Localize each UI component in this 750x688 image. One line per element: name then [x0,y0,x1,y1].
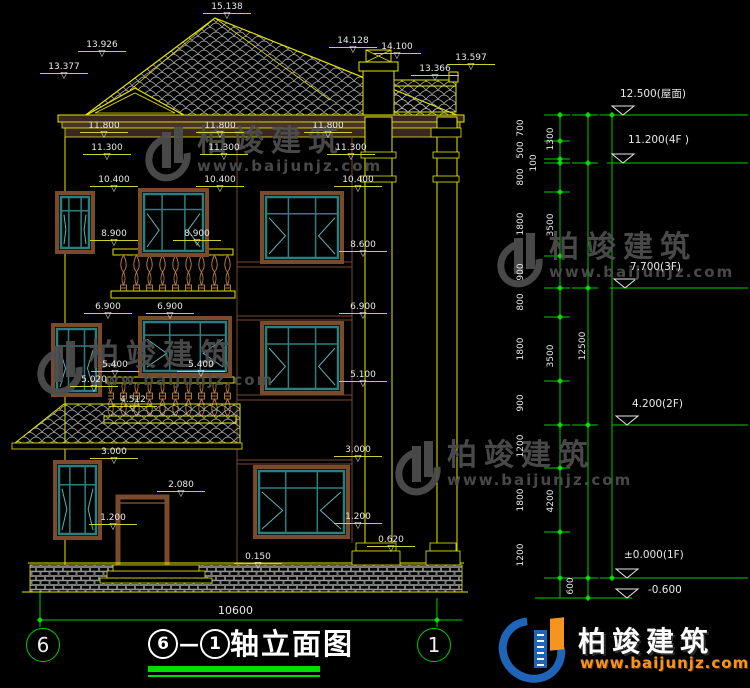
chain-dim-label: 4200 [546,490,556,513]
level-triangle-icon: ▽ [99,50,106,59]
dim-label: 5.400▽ [177,360,225,372]
dim-label: 8.900▽ [90,229,138,241]
chain-dim-label: 800 [516,293,526,310]
chain-dim-label: 700 [516,119,526,136]
dim-label: 0.150▽ [234,552,282,564]
level-triangle-icon: ▽ [360,312,367,321]
level-triangle-icon: ▽ [360,250,367,259]
elevation-label: ±0.000(1F) [624,549,684,561]
level-triangle-icon: ▽ [110,523,117,532]
watermark-brand-text: 柏竣建筑 [549,232,734,264]
level-triangle-icon: ▽ [101,131,108,140]
dim-label: 2.080▽ [157,480,205,492]
elevation-label: 4.200(2F) [632,398,683,410]
dim-label: 8.900▽ [173,229,221,241]
level-triangle-icon: ▽ [217,185,224,194]
dim-label: 5.020▽ [70,375,118,387]
logo-building-icon [550,617,564,650]
level-triangle-icon: ▽ [355,522,362,531]
window [255,467,348,537]
level-triangle-icon: ▽ [350,46,357,55]
chain-dim-label: 600 [566,577,576,594]
logo-building-icon-blue [534,630,547,668]
level-triangle-icon: ▽ [355,185,362,194]
chain-dim-label: 1300 [546,128,556,151]
chain-dim-label: 900 [516,394,526,411]
level-triangle-icon: ▽ [224,12,231,21]
level-triangle-icon: ▽ [217,131,224,140]
chain-dim-label: 100 [529,154,539,171]
dim-label: 13.366▽ [411,64,459,76]
chain-dim-label: 1800 [516,338,526,361]
window [262,193,342,262]
level-triangle-icon: ▽ [388,545,395,554]
chain-dim-label: 800 [516,168,526,185]
window [57,193,93,252]
title-axis-start: 6 [148,629,178,659]
chain-dim-label: 3500 [546,214,556,237]
level-triangle-icon: ▽ [61,72,68,81]
title-underline-thick [148,666,320,672]
drawing-title: 6 — 1 轴立面图 [148,628,354,660]
dim-label: 5.400▽ [91,360,139,372]
title-axis-end: 1 [200,629,230,659]
dim-label: 11.300▽ [200,143,248,155]
dim-label: 6.900▽ [84,302,132,314]
watermark: 柏竣建筑www.baijunjz.com [396,440,632,494]
dim-label: 14.128▽ [329,36,377,48]
level-triangle-icon: ▽ [221,153,228,162]
title-text: 轴立面图 [230,628,354,660]
dim-label: 11.800▽ [304,121,352,133]
level-triangle-icon: ▽ [111,457,118,466]
entry-steps [100,565,212,583]
dim-label: 3.000▽ [90,447,138,459]
chain-dim-label: 1800 [516,213,526,236]
level-triangle-icon: ▽ [348,153,355,162]
level-triangle-icon: ▽ [105,312,112,321]
dim-label: 10600 [218,604,253,617]
chain-dim-label: 1800 [516,489,526,512]
level-triangle-icon: ▽ [325,131,332,140]
logo-swoosh-icon [486,604,579,688]
dim-label: 10.400▽ [334,175,382,187]
elevation-label: 12.500(屋面) [620,86,686,101]
level-triangle-icon: ▽ [432,74,439,83]
dim-label: 3.000▽ [334,445,382,457]
level-triangle-icon: ▽ [194,239,201,248]
level-triangle-icon: ▽ [91,385,98,394]
logo-url-text: www.baijunjz.com [580,654,749,672]
watermark: 柏竣建筑www.baijunjz.com [498,232,734,286]
dim-label: 13.926▽ [78,40,126,52]
foundation-bricks [22,563,468,592]
chain-dim-label: 1200 [516,435,526,458]
level-triangle-icon: ▽ [167,312,174,321]
watermark-logo-icon [396,440,440,494]
axis-bubble-1: 1 [417,628,451,662]
level-triangle-icon: ▽ [198,370,205,379]
dim-label: 6.900▽ [339,302,387,314]
dim-label: 13.377▽ [40,62,88,74]
axis-bubble-6: 6 [26,628,60,662]
dim-label: 10.400▽ [90,175,138,187]
cad-drawing-viewport: 柏竣建筑www.baijunjz.com柏竣建筑www.baijunjz.com… [0,0,750,688]
chain-dim-label: 500 [516,141,526,158]
level-triangle-icon: ▽ [178,490,185,499]
level-triangle-icon: ▽ [111,185,118,194]
watermark-url-text: www.baijunjz.com [447,472,632,489]
dim-label: 0.620▽ [367,535,415,547]
level-triangle-icon: ▽ [104,153,111,162]
level-triangle-icon: ▽ [130,405,137,414]
dim-label: 14.100▽ [373,42,421,54]
dim-label: 10.400▽ [196,175,244,187]
dim-label: 11.800▽ [196,121,244,133]
watermark-brand-text: 柏竣建筑 [447,440,632,472]
dim-label: 15.138▽ [203,2,251,14]
dim-label: 11.300▽ [327,143,375,155]
elevation-label: 7.700(3F) [630,261,681,273]
chain-dim-label: 3500 [546,345,556,368]
dim-label: 13.597▽ [447,53,495,65]
dim-label: 4.512▽ [109,395,157,407]
chain-dim-label: 12500 [578,332,588,361]
dim-label: 11.300▽ [83,143,131,155]
dim-label: 1.200▽ [334,512,382,524]
title-underline-thin [148,675,320,677]
dim-label: 5.100▽ [339,370,387,382]
dim-label: 1.200▽ [89,513,137,525]
dim-label: 8.600▽ [339,240,387,252]
title-axis-dash: — [179,632,199,656]
level-triangle-icon: ▽ [394,52,401,61]
window [55,462,100,538]
dim-label: 6.900▽ [146,302,194,314]
elevation-label: -0.600 [648,584,682,596]
level-triangle-icon: ▽ [355,455,362,464]
dim-label: 11.800▽ [80,121,128,133]
level-triangle-icon: ▽ [111,239,118,248]
elevation-label: 11.200(4F ) [628,134,689,146]
chain-dim-label: 900 [516,263,526,280]
watermark-logo-icon [146,126,190,180]
level-triangle-icon: ▽ [468,63,475,72]
level-triangle-icon: ▽ [255,562,262,571]
brand-logo: 柏竣建筑 www.baijunjz.com [492,608,742,680]
level-triangle-icon: ▽ [360,380,367,389]
chain-dim-label: 1200 [516,544,526,567]
